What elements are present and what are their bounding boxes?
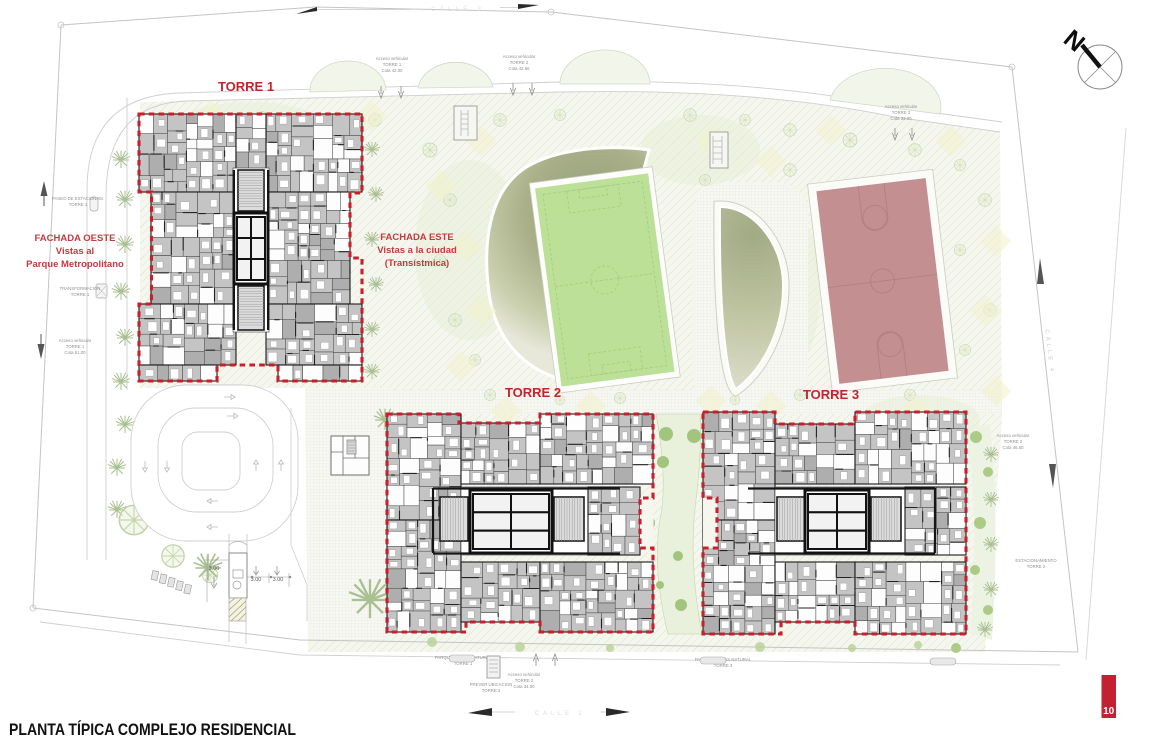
svg-text:ESTACIONAMIENTO: ESTACIONAMIENTO xyxy=(1015,558,1057,563)
svg-text:Acceso vehicular: Acceso vehicular xyxy=(997,433,1030,438)
svg-text:Cota 46.50: Cota 46.50 xyxy=(1002,445,1024,450)
svg-text:Cota 42.00: Cota 42.00 xyxy=(381,68,403,73)
svg-text:Cota 51.00: Cota 51.00 xyxy=(64,350,86,355)
svg-text:TRANSFORMACION: TRANSFORMACION xyxy=(60,286,101,291)
svg-text:Acceso vehicular: Acceso vehicular xyxy=(885,104,918,109)
svg-text:Cota 34.00: Cota 34.00 xyxy=(513,684,535,689)
svg-text:TORRE 3: TORRE 3 xyxy=(803,387,859,402)
svg-text:PASEO DE ESTACIONAM.: PASEO DE ESTACIONAM. xyxy=(52,196,104,201)
svg-text:TORRE 2: TORRE 2 xyxy=(515,678,534,683)
svg-text:10: 10 xyxy=(1103,706,1115,717)
svg-text:FACHADA OESTE: FACHADA OESTE xyxy=(35,233,116,244)
svg-text:Parque Metropolitano: Parque Metropolitano xyxy=(26,259,124,270)
svg-text:TORRE 1: TORRE 1 xyxy=(71,292,90,297)
svg-text:3.00: 3.00 xyxy=(273,577,284,583)
svg-text:Vistas a la ciudad: Vistas a la ciudad xyxy=(377,245,457,256)
svg-text:FACHADA ESTE: FACHADA ESTE xyxy=(380,232,454,243)
svg-text:TORRE 2: TORRE 2 xyxy=(1027,564,1046,569)
svg-text:CALLE 3: CALLE 3 xyxy=(431,6,485,13)
svg-text:PREVER UBICACION: PREVER UBICACION xyxy=(470,682,513,687)
svg-text:Acceso vehicular: Acceso vehicular xyxy=(508,672,541,677)
svg-text:CALLE 2: CALLE 2 xyxy=(535,710,586,717)
svg-text:Acceso vehicular: Acceso vehicular xyxy=(59,338,92,343)
svg-text:3.00: 3.00 xyxy=(209,566,220,572)
svg-text:Acceso vehicular: Acceso vehicular xyxy=(503,54,536,59)
svg-text:TORRE 2: TORRE 2 xyxy=(1004,439,1023,444)
svg-text:TORRE 2: TORRE 2 xyxy=(482,688,501,693)
svg-text:TORRE 3: TORRE 3 xyxy=(892,110,911,115)
svg-text:PLANTA TÍPICA COMPLEJO RESIDEN: PLANTA TÍPICA COMPLEJO RESIDENCIAL xyxy=(9,720,296,739)
svg-text:Cota 33.00: Cota 33.00 xyxy=(890,116,912,121)
svg-text:TORRE 1: TORRE 1 xyxy=(66,344,85,349)
svg-text:TORRE 2: TORRE 2 xyxy=(510,60,529,65)
svg-text:TORRE 2: TORRE 2 xyxy=(505,385,561,400)
svg-text:Vistas al: Vistas al xyxy=(56,246,94,257)
svg-text:Cota 42.66: Cota 42.66 xyxy=(508,66,530,71)
svg-text:(Transístmica): (Transístmica) xyxy=(385,258,449,269)
svg-text:Acceso vehicular: Acceso vehicular xyxy=(376,56,409,61)
svg-text:TORRE 1: TORRE 1 xyxy=(383,62,402,67)
svg-text:TORRE 1: TORRE 1 xyxy=(218,79,274,94)
svg-text:TORRE 1: TORRE 1 xyxy=(69,202,88,207)
